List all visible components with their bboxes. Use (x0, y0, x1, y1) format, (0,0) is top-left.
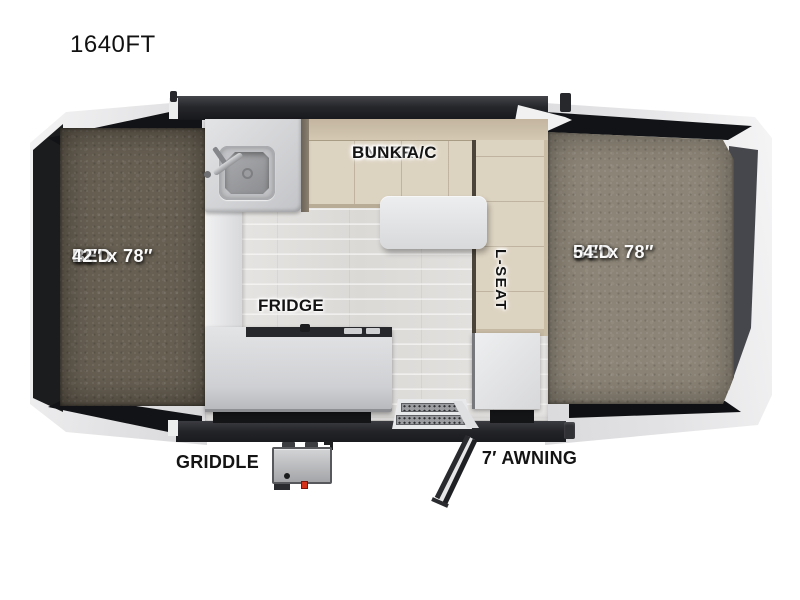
wall-nub-top-left (170, 91, 177, 102)
griddle-body (272, 447, 332, 484)
under-bunk-ac-line2: BUNK A/C (352, 141, 437, 165)
griddle-icon (272, 441, 334, 490)
wall-bottom (176, 421, 566, 442)
counter-knob (300, 324, 310, 332)
fridge-counter (205, 327, 392, 412)
wall-cap-bottom-left (168, 420, 178, 436)
wall-cap-bottom-right (564, 422, 575, 439)
bed-left-mattress (60, 128, 207, 406)
griddle-label: GRIDDLE (155, 450, 280, 474)
bed-left-label-line2: 42″ x 78″ (72, 245, 153, 267)
storage-cabinet (472, 333, 540, 409)
dinette-backrest (308, 119, 548, 141)
floor-mat-left (213, 411, 371, 423)
counter-bench-divider (301, 119, 309, 212)
floorplan-canvas: 1640FT (0, 0, 800, 600)
awning-arm-icon (405, 430, 505, 510)
faucet-tip (204, 171, 211, 178)
griddle-switch (301, 481, 308, 489)
faucet-icon (203, 143, 249, 183)
wall-nub-top-right (560, 93, 571, 112)
l-seat-label: L-SEAT (483, 249, 509, 344)
bed-right-mattress (548, 132, 734, 404)
counter-handle (366, 328, 380, 334)
griddle-foot (274, 484, 290, 490)
wall-top (173, 96, 548, 120)
step-tread (396, 415, 468, 425)
awning-label: 7′ AWNING (467, 446, 592, 470)
griddle-knob (284, 473, 290, 479)
counter-handle (344, 328, 362, 334)
model-title: 1640FT (70, 31, 156, 59)
floor-mat-right (490, 410, 534, 423)
dinette-table-icon (380, 196, 487, 249)
fridge-label: FRIDGE (231, 294, 351, 318)
step-tread (401, 403, 463, 412)
bed-right-label-line2: 54″ x 78″ (573, 241, 654, 263)
